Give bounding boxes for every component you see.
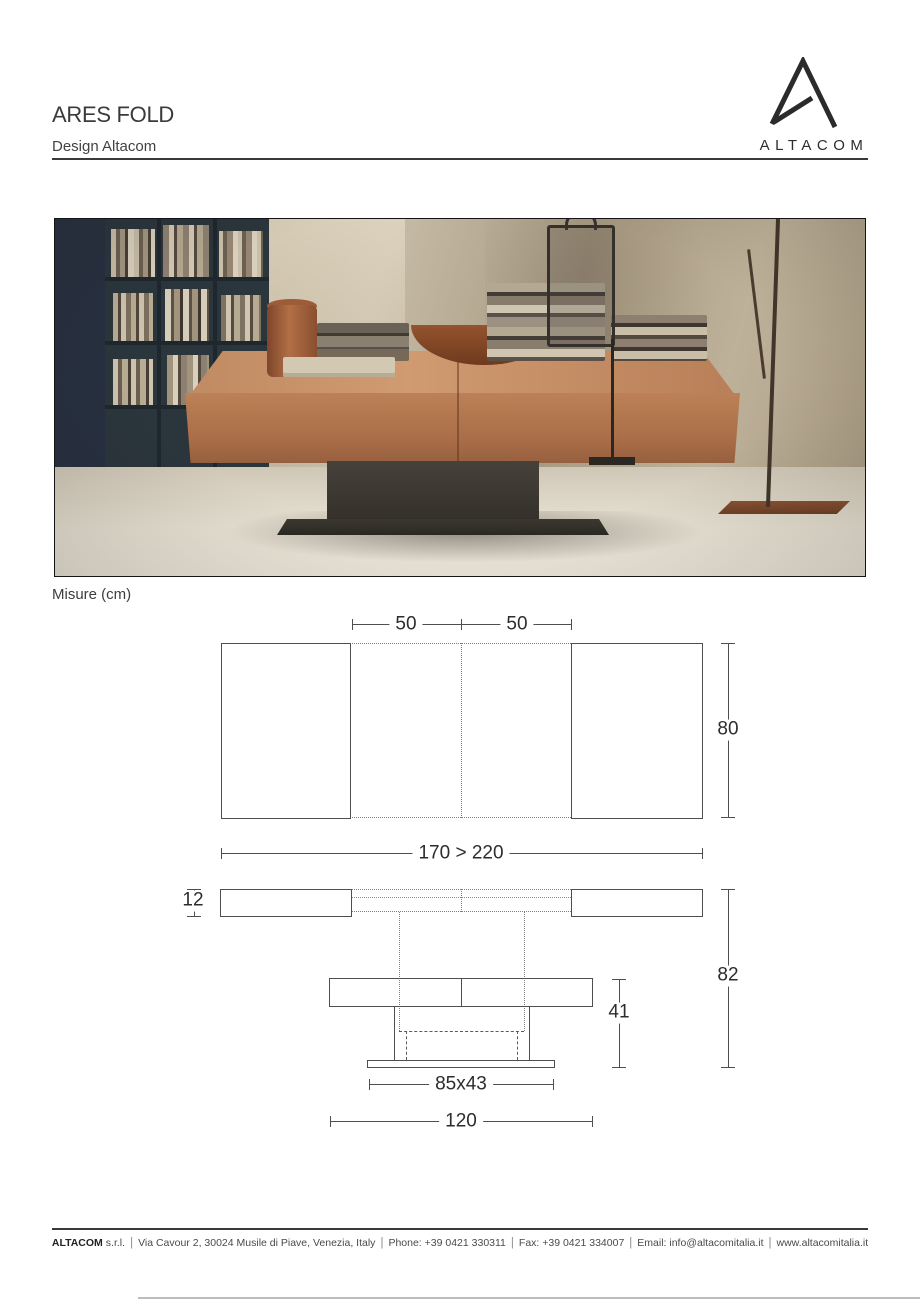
pedestal-right-edge xyxy=(529,1006,530,1061)
dim-tick xyxy=(187,916,201,917)
dim-tick xyxy=(461,619,462,630)
footer-fax: Fax: +39 0421 334007 xyxy=(519,1237,624,1249)
measures-label: Misure (cm) xyxy=(52,586,131,603)
front-left-leaf-outline xyxy=(220,889,352,917)
dim-tick xyxy=(721,817,735,818)
front-centerline-dotted xyxy=(461,889,462,912)
footer-separator: | xyxy=(629,1237,632,1249)
footer-company: ALTACOM xyxy=(52,1237,103,1249)
column-projection-dotted-left xyxy=(399,912,400,1031)
footer-contact-line: ALTACOMs.r.l. | Via Cavour 2, 30024 Musi… xyxy=(52,1237,868,1249)
footer-company-type: s.r.l. xyxy=(106,1237,125,1249)
dim-tick xyxy=(721,889,735,890)
header-rule xyxy=(52,158,868,160)
dim-tick xyxy=(721,643,735,644)
footer-email: Email: info@altacomitalia.it xyxy=(637,1237,763,1249)
photo-vignette xyxy=(55,219,866,577)
footer-website: www.altacomitalia.it xyxy=(777,1237,869,1249)
dim-tick xyxy=(553,1079,554,1090)
dim-tick xyxy=(721,1067,735,1068)
dim-tick xyxy=(221,848,222,859)
plan-left-leaf-outline xyxy=(221,643,351,819)
pedestal-inner-dashed-right xyxy=(517,1031,518,1060)
dim-raised-height-label: 82 xyxy=(711,966,744,987)
pedestal-inner-dashed-top xyxy=(399,1031,524,1032)
front-right-leaf-outline xyxy=(571,889,703,917)
footer-address: Via Cavour 2, 30024 Musile di Piave, Ven… xyxy=(138,1237,375,1249)
brand-wordmark: ALTACOM xyxy=(746,137,877,154)
footer-rule xyxy=(52,1228,868,1230)
dim-tick xyxy=(352,619,353,630)
plan-right-leaf-outline xyxy=(571,643,703,819)
datasheet-page: ARES FOLD Design Altacom ALTACOM xyxy=(0,0,920,1301)
dim-tick xyxy=(369,1079,370,1090)
pedestal-inner-dashed-left xyxy=(406,1031,407,1060)
dim-depth-label: 80 xyxy=(711,720,744,741)
footer-separator: | xyxy=(130,1237,133,1249)
column-projection-dotted-right xyxy=(524,912,525,1031)
dim-base-size-label: 85x43 xyxy=(429,1075,493,1096)
dim-lowered-length-label: 120 xyxy=(439,1112,483,1133)
dim-leaf-right-label: 50 xyxy=(500,615,533,636)
dim-tick xyxy=(612,979,626,980)
footer-separator: | xyxy=(380,1237,383,1249)
pedestal-left-edge xyxy=(394,1006,395,1061)
dim-tick xyxy=(571,619,572,630)
product-photo xyxy=(54,218,866,577)
dim-tick xyxy=(330,1116,331,1127)
altacom-a-mark-icon xyxy=(763,57,847,129)
page-edge-artifact xyxy=(138,1297,920,1299)
page-title: ARES FOLD xyxy=(52,104,174,126)
front-lowered-top-divider xyxy=(461,978,462,1007)
dim-lowered-height-label: 41 xyxy=(602,1003,635,1024)
dim-leaf-left-label: 50 xyxy=(389,615,422,636)
base-plate-outline xyxy=(367,1060,555,1068)
dim-thickness-label: 12 xyxy=(176,891,209,912)
dim-length-range-label: 170 > 220 xyxy=(412,844,509,865)
dim-tick xyxy=(612,1067,626,1068)
footer-phone: Phone: +39 0421 330311 xyxy=(388,1237,505,1249)
footer-separator: | xyxy=(511,1237,514,1249)
footer-separator: | xyxy=(769,1237,772,1249)
plan-centerline-dotted xyxy=(461,643,462,818)
page-subtitle: Design Altacom xyxy=(52,139,156,154)
dim-tick xyxy=(592,1116,593,1127)
dim-lowered-height-line xyxy=(619,979,620,1068)
dim-tick xyxy=(702,848,703,859)
